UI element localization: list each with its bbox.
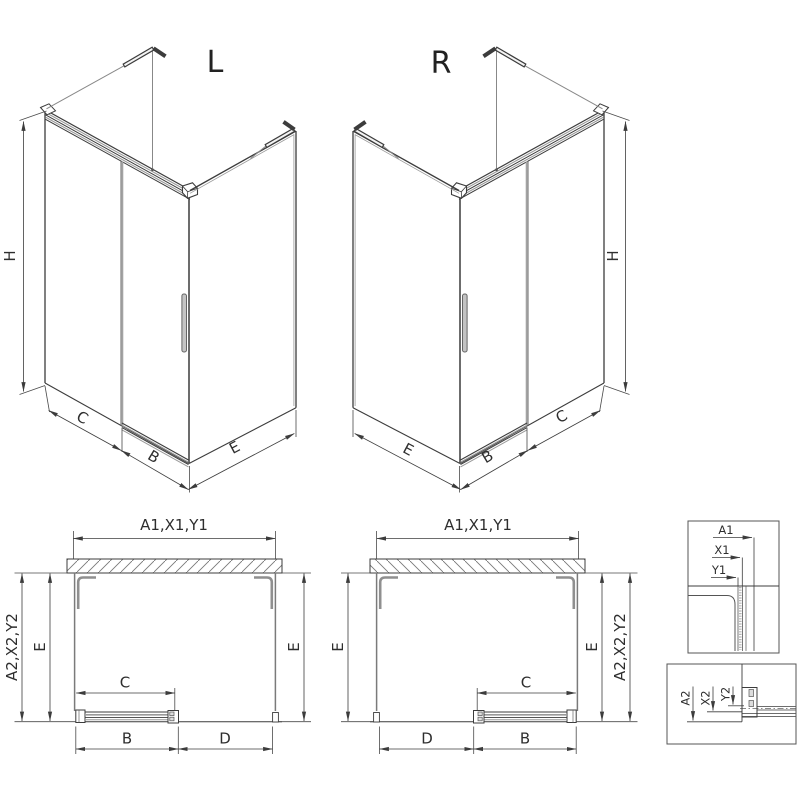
- dim-label-e-right: E: [400, 439, 417, 459]
- view-label-right: R: [431, 46, 452, 81]
- detail-dim-x1: X1: [714, 543, 729, 557]
- plan-right-dim-c: C: [521, 674, 531, 692]
- detail-wall-profile: A1 X1 Y1: [688, 521, 779, 653]
- wall-profile-section: [688, 596, 735, 652]
- plan-view-right: A1,X1,Y1 E E A2,X2,Y2 C B D: [329, 516, 638, 754]
- detail-top-frame: [688, 521, 779, 653]
- detail-dim-y1: Y1: [711, 563, 726, 577]
- dim-label-b-left: B: [145, 446, 163, 467]
- plan-right-dim-side: A2,X2,Y2: [611, 613, 629, 681]
- technical-drawing-page: L H C B E R H E B C A1,X1,Y1 A2,X2,Y2 E …: [0, 0, 800, 800]
- plan-right-dim-top: A1,X1,Y1: [444, 516, 512, 534]
- plan-left-dim-c: C: [120, 674, 130, 692]
- detail-dim-a1: A1: [718, 523, 733, 537]
- plan-left-dim-d: D: [219, 730, 231, 748]
- dim-label-e-left: E: [226, 437, 243, 457]
- detail-dim-y2: Y2: [719, 687, 733, 702]
- view-label-left: L: [207, 45, 224, 80]
- plan-view-left: A1,X1,Y1 A2,X2,Y2 E E C B D: [3, 516, 311, 754]
- plan-left-dim-top: A1,X1,Y1: [140, 516, 208, 534]
- plan-right-dim-e-left: E: [329, 642, 347, 651]
- technical-drawing: L H C B E R H E B C A1,X1,Y1 A2,X2,Y2 E …: [0, 0, 800, 800]
- dim-label-h-left: H: [1, 250, 19, 261]
- dim-label-c-right: C: [553, 406, 571, 427]
- detail-dim-a2: A2: [679, 690, 693, 705]
- dim-label-c-left: C: [73, 407, 91, 428]
- detail-bottom-rail: A2 X2 Y2: [667, 664, 796, 744]
- plan-right-dim-e-right: E: [583, 642, 601, 651]
- iso-view-right: R H E B C: [353, 46, 630, 493]
- plan-right-dim-d: D: [421, 730, 433, 748]
- plan-left-dim-e-right: E: [285, 642, 303, 651]
- iso-view-left: L H C B E: [1, 45, 296, 493]
- dim-label-h-right: H: [604, 250, 622, 261]
- plan-left-dim-b: B: [122, 730, 132, 748]
- plan-right-dim-b: B: [520, 730, 530, 748]
- plan-left-dim-side: A2,X2,Y2: [3, 613, 21, 681]
- detail-dim-x2: X2: [699, 690, 713, 705]
- dim-label-b-right: B: [478, 446, 496, 467]
- plan-left-dim-e-left: E: [31, 642, 49, 651]
